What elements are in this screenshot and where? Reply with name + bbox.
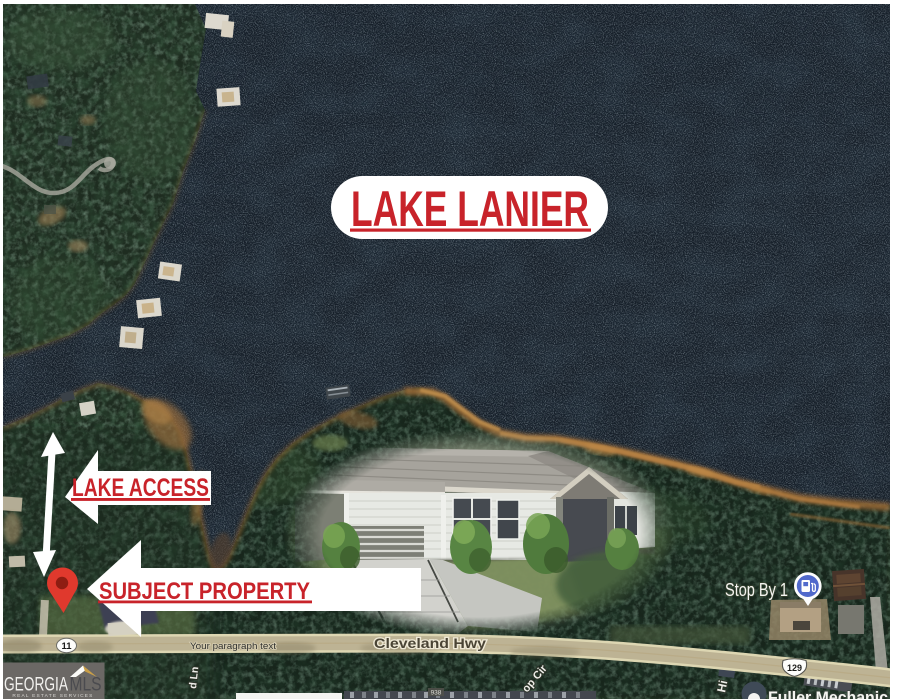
svg-text:LAKE ACCESS: LAKE ACCESS xyxy=(72,474,209,502)
svg-text:MLS: MLS xyxy=(70,675,102,696)
svg-text:Your paragraph text: Your paragraph text xyxy=(190,641,277,651)
svg-text:GEORGIA: GEORGIA xyxy=(4,675,68,696)
svg-text:REAL ESTATE SERVICES: REAL ESTATE SERVICES xyxy=(12,693,93,699)
svg-text:d Ln: d Ln xyxy=(187,666,201,689)
svg-text:Fuller Mechanic: Fuller Mechanic xyxy=(768,688,888,699)
svg-text:Stop By 1: Stop By 1 xyxy=(725,580,788,600)
svg-text:938: 938 xyxy=(431,690,442,697)
svg-text:129: 129 xyxy=(787,663,802,673)
svg-text:11: 11 xyxy=(61,641,72,652)
